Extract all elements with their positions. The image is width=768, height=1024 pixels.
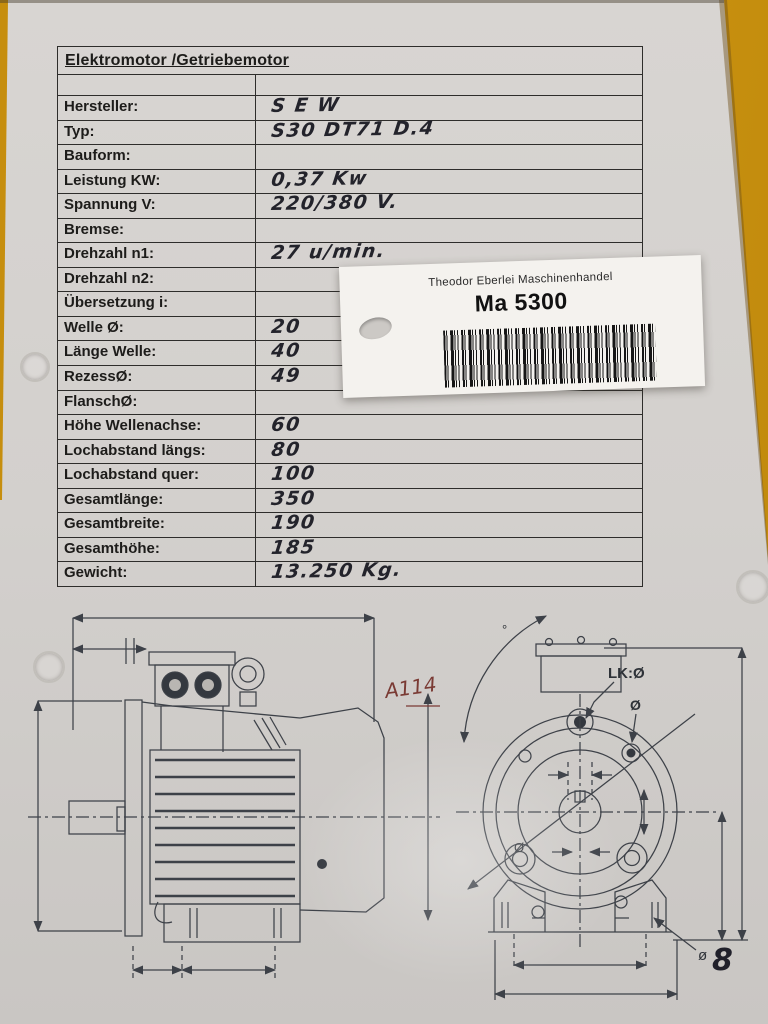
barcode — [443, 324, 657, 388]
form-row: Leistung KW:0,37 Kw — [58, 169, 642, 194]
form-row: Bremse: — [58, 218, 642, 243]
field-label: Lochabstand längs: — [58, 440, 256, 464]
paper-punch-hole — [736, 570, 768, 604]
field-label: Bremse: — [58, 219, 256, 243]
field-label: RezessØ: — [58, 366, 256, 390]
red-handwritten-annotation: A114 — [381, 672, 438, 703]
form-row: Gewicht:13.250 Kg. — [58, 561, 642, 586]
form-row: Lochabstand quer:100 — [58, 463, 642, 488]
handwritten-value: 80 — [270, 439, 302, 461]
handwritten-value: 13.250 Kg. — [270, 560, 403, 583]
foot-hole-diameter-value: 8 — [712, 943, 733, 978]
degree-symbol: ° — [502, 622, 507, 637]
empty-value-cell — [256, 75, 642, 95]
handwritten-value: S E W — [270, 95, 341, 117]
empty-label-cell — [58, 75, 256, 95]
field-label: Spannung V: — [58, 194, 256, 218]
field-label: Leistung KW: — [58, 170, 256, 194]
handwritten-value: 27 u/min. — [270, 241, 387, 264]
form-row: Typ:S30 DT71 D.4 — [58, 120, 642, 145]
paper-punch-hole — [20, 352, 50, 382]
field-label: Höhe Wellenachse: — [58, 415, 256, 439]
camera-flash-glare — [276, 717, 645, 1004]
empty-row — [58, 74, 642, 95]
field-label: Typ: — [58, 121, 256, 145]
handwritten-value: 20 — [270, 316, 302, 338]
form-row: Spannung V:220/380 V. — [58, 193, 642, 218]
field-label: Gewicht: — [58, 562, 256, 586]
handwritten-value: 220/380 V. — [270, 192, 400, 215]
handwritten-value: 40 — [270, 341, 302, 363]
handwritten-value: 100 — [270, 463, 317, 485]
form-title: Elektromotor /Getriebemotor — [58, 47, 642, 74]
form-row: Bauform: — [58, 144, 642, 169]
handwritten-value: 49 — [270, 366, 302, 388]
field-label: Hersteller: — [58, 96, 256, 120]
field-label: Gesamthöhe: — [58, 538, 256, 562]
field-label: Drehzahl n1: — [58, 243, 256, 267]
form-row: Lochabstand längs:80 — [58, 439, 642, 464]
field-label: Bauform: — [58, 145, 256, 169]
inventory-sticker: Theodor Eberlei Maschinenhandel Ma 5300 — [339, 255, 705, 398]
field-label: Gesamtlänge: — [58, 489, 256, 513]
bolt-hole-diameter-label: Ø — [630, 697, 641, 713]
paper-top-shadow — [0, 0, 724, 3]
handwritten-value: 185 — [270, 537, 317, 559]
handwritten-value: S30 DT71 D.4 — [270, 118, 436, 142]
form-row: Gesamthöhe:185 — [58, 537, 642, 562]
form-row: Gesamtlänge:350 — [58, 488, 642, 513]
form-row: Höhe Wellenachse:60 — [58, 414, 642, 439]
field-label: Länge Welle: — [58, 341, 256, 365]
bolt-circle-diameter-label: LK:Ø — [608, 665, 645, 682]
foot-hole-diameter-symbol: ø — [698, 947, 707, 964]
form-row: Hersteller:S E W — [58, 95, 642, 120]
field-label: Drehzahl n2: — [58, 268, 256, 292]
photo-of-paper-form: Elektromotor /Getriebemotor Hersteller:S… — [0, 0, 768, 1024]
field-label: FlanschØ: — [58, 391, 256, 415]
field-label: Übersetzung i: — [58, 292, 256, 316]
field-label: Lochabstand quer: — [58, 464, 256, 488]
handwritten-value: 190 — [270, 513, 317, 535]
handwritten-value: 0,37 Kw — [270, 168, 369, 191]
field-label: Welle Ø: — [58, 317, 256, 341]
handwritten-value: 60 — [270, 415, 302, 437]
field-label: Gesamtbreite: — [58, 513, 256, 537]
form-row: Gesamtbreite:190 — [58, 512, 642, 537]
handwritten-value: 350 — [270, 488, 317, 510]
